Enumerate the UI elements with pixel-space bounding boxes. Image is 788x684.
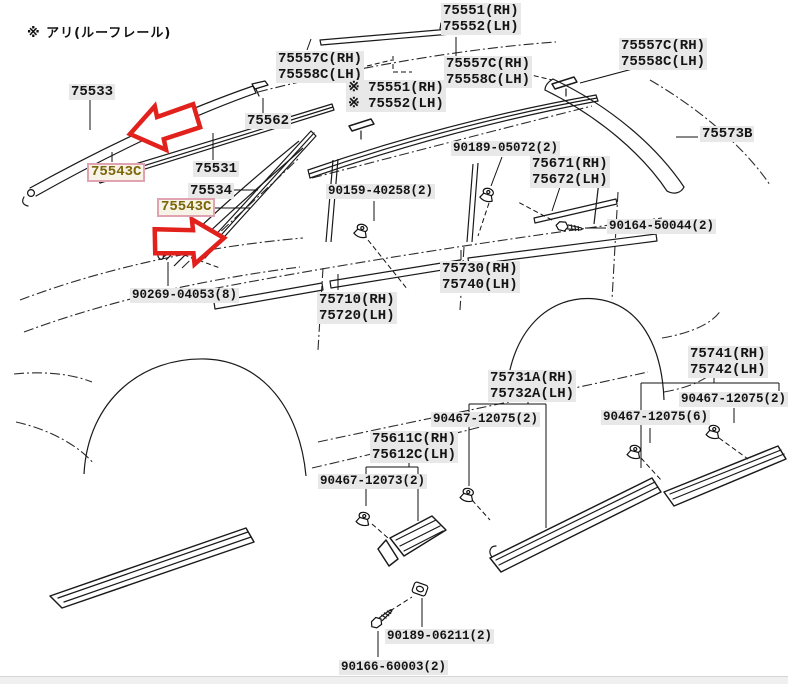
label-90164-50044[interactable]: 90164-50044(2) xyxy=(607,219,716,234)
label-75533[interactable]: 75533 xyxy=(69,84,115,100)
label-75534[interactable]: 75534 xyxy=(188,183,234,199)
label-75731a-75732a[interactable]: 75731A(RH)75732A(LH) xyxy=(488,370,576,402)
label-90467-12075-six[interactable]: 90467-12075(6) xyxy=(601,410,710,425)
label-90467-12075-mid[interactable]: 90467-12075(2) xyxy=(431,412,540,427)
label-75573b[interactable]: 75573B xyxy=(700,126,754,142)
label-75671-75672[interactable]: 75671(RH)75672(LH) xyxy=(530,156,610,188)
label-90467-12073[interactable]: 90467-12073(2) xyxy=(318,474,427,489)
label-75531[interactable]: 75531 xyxy=(193,161,239,177)
label-75730-75740[interactable]: 75730(RH)75740(LH) xyxy=(440,261,520,293)
window-bottom-edge xyxy=(0,676,788,684)
label-90159-40258[interactable]: 90159-40258(2) xyxy=(326,184,435,199)
label-75543c-lower[interactable]: 75543C xyxy=(157,198,215,217)
label-90189-05072[interactable]: 90189-05072(2) xyxy=(451,141,560,156)
label-75557c-75558c-left[interactable]: 75557C(RH)75558C(LH) xyxy=(276,51,364,83)
label-90166-60003[interactable]: 90166-60003(2) xyxy=(339,660,448,675)
label-75741-75742[interactable]: 75741(RH)75742(LH) xyxy=(688,346,768,378)
label-90467-12075-right[interactable]: 90467-12075(2) xyxy=(679,392,788,407)
label-90269-04053[interactable]: 90269-04053(8) xyxy=(130,288,239,303)
label-layer: 75551(RH)75552(LH)75557C(RH)75558C(LH)75… xyxy=(0,0,788,684)
label-75551-75552-roofrail[interactable]: ※ 75551(RH)※ 75552(LH) xyxy=(346,80,446,112)
label-75557c-75558c-mid[interactable]: 75557C(RH)75558C(LH) xyxy=(444,56,532,88)
parts-diagram-page: ※ アリ(ルーフレール) 75551(RH)75552(LH)75557C(RH… xyxy=(0,0,788,684)
label-75710-75720[interactable]: 75710(RH)75720(LH) xyxy=(317,292,397,324)
label-75562[interactable]: 75562 xyxy=(245,113,291,129)
label-75551-75552-roof[interactable]: 75551(RH)75552(LH) xyxy=(441,3,521,35)
label-90189-06211[interactable]: 90189-06211(2) xyxy=(385,629,494,644)
label-75557c-75558c-right[interactable]: 75557C(RH)75558C(LH) xyxy=(619,38,707,70)
label-75611c-75612c[interactable]: 75611C(RH)75612C(LH) xyxy=(370,431,458,463)
label-75543c-upper[interactable]: 75543C xyxy=(87,163,145,182)
